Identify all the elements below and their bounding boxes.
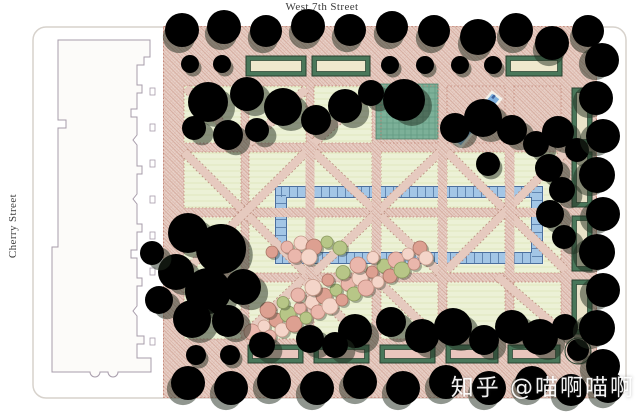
street-label-cherry: Cherry Street: [7, 171, 19, 281]
site-plan-drawing: [0, 0, 640, 412]
watermark-text: 知乎 @喵啊喵啊: [451, 368, 635, 402]
street-label-west-7th: West 7th Street: [222, 1, 422, 13]
site-plan-canvas: West 7th Street Cherry Street 知乎 @喵啊喵啊: [0, 0, 640, 412]
